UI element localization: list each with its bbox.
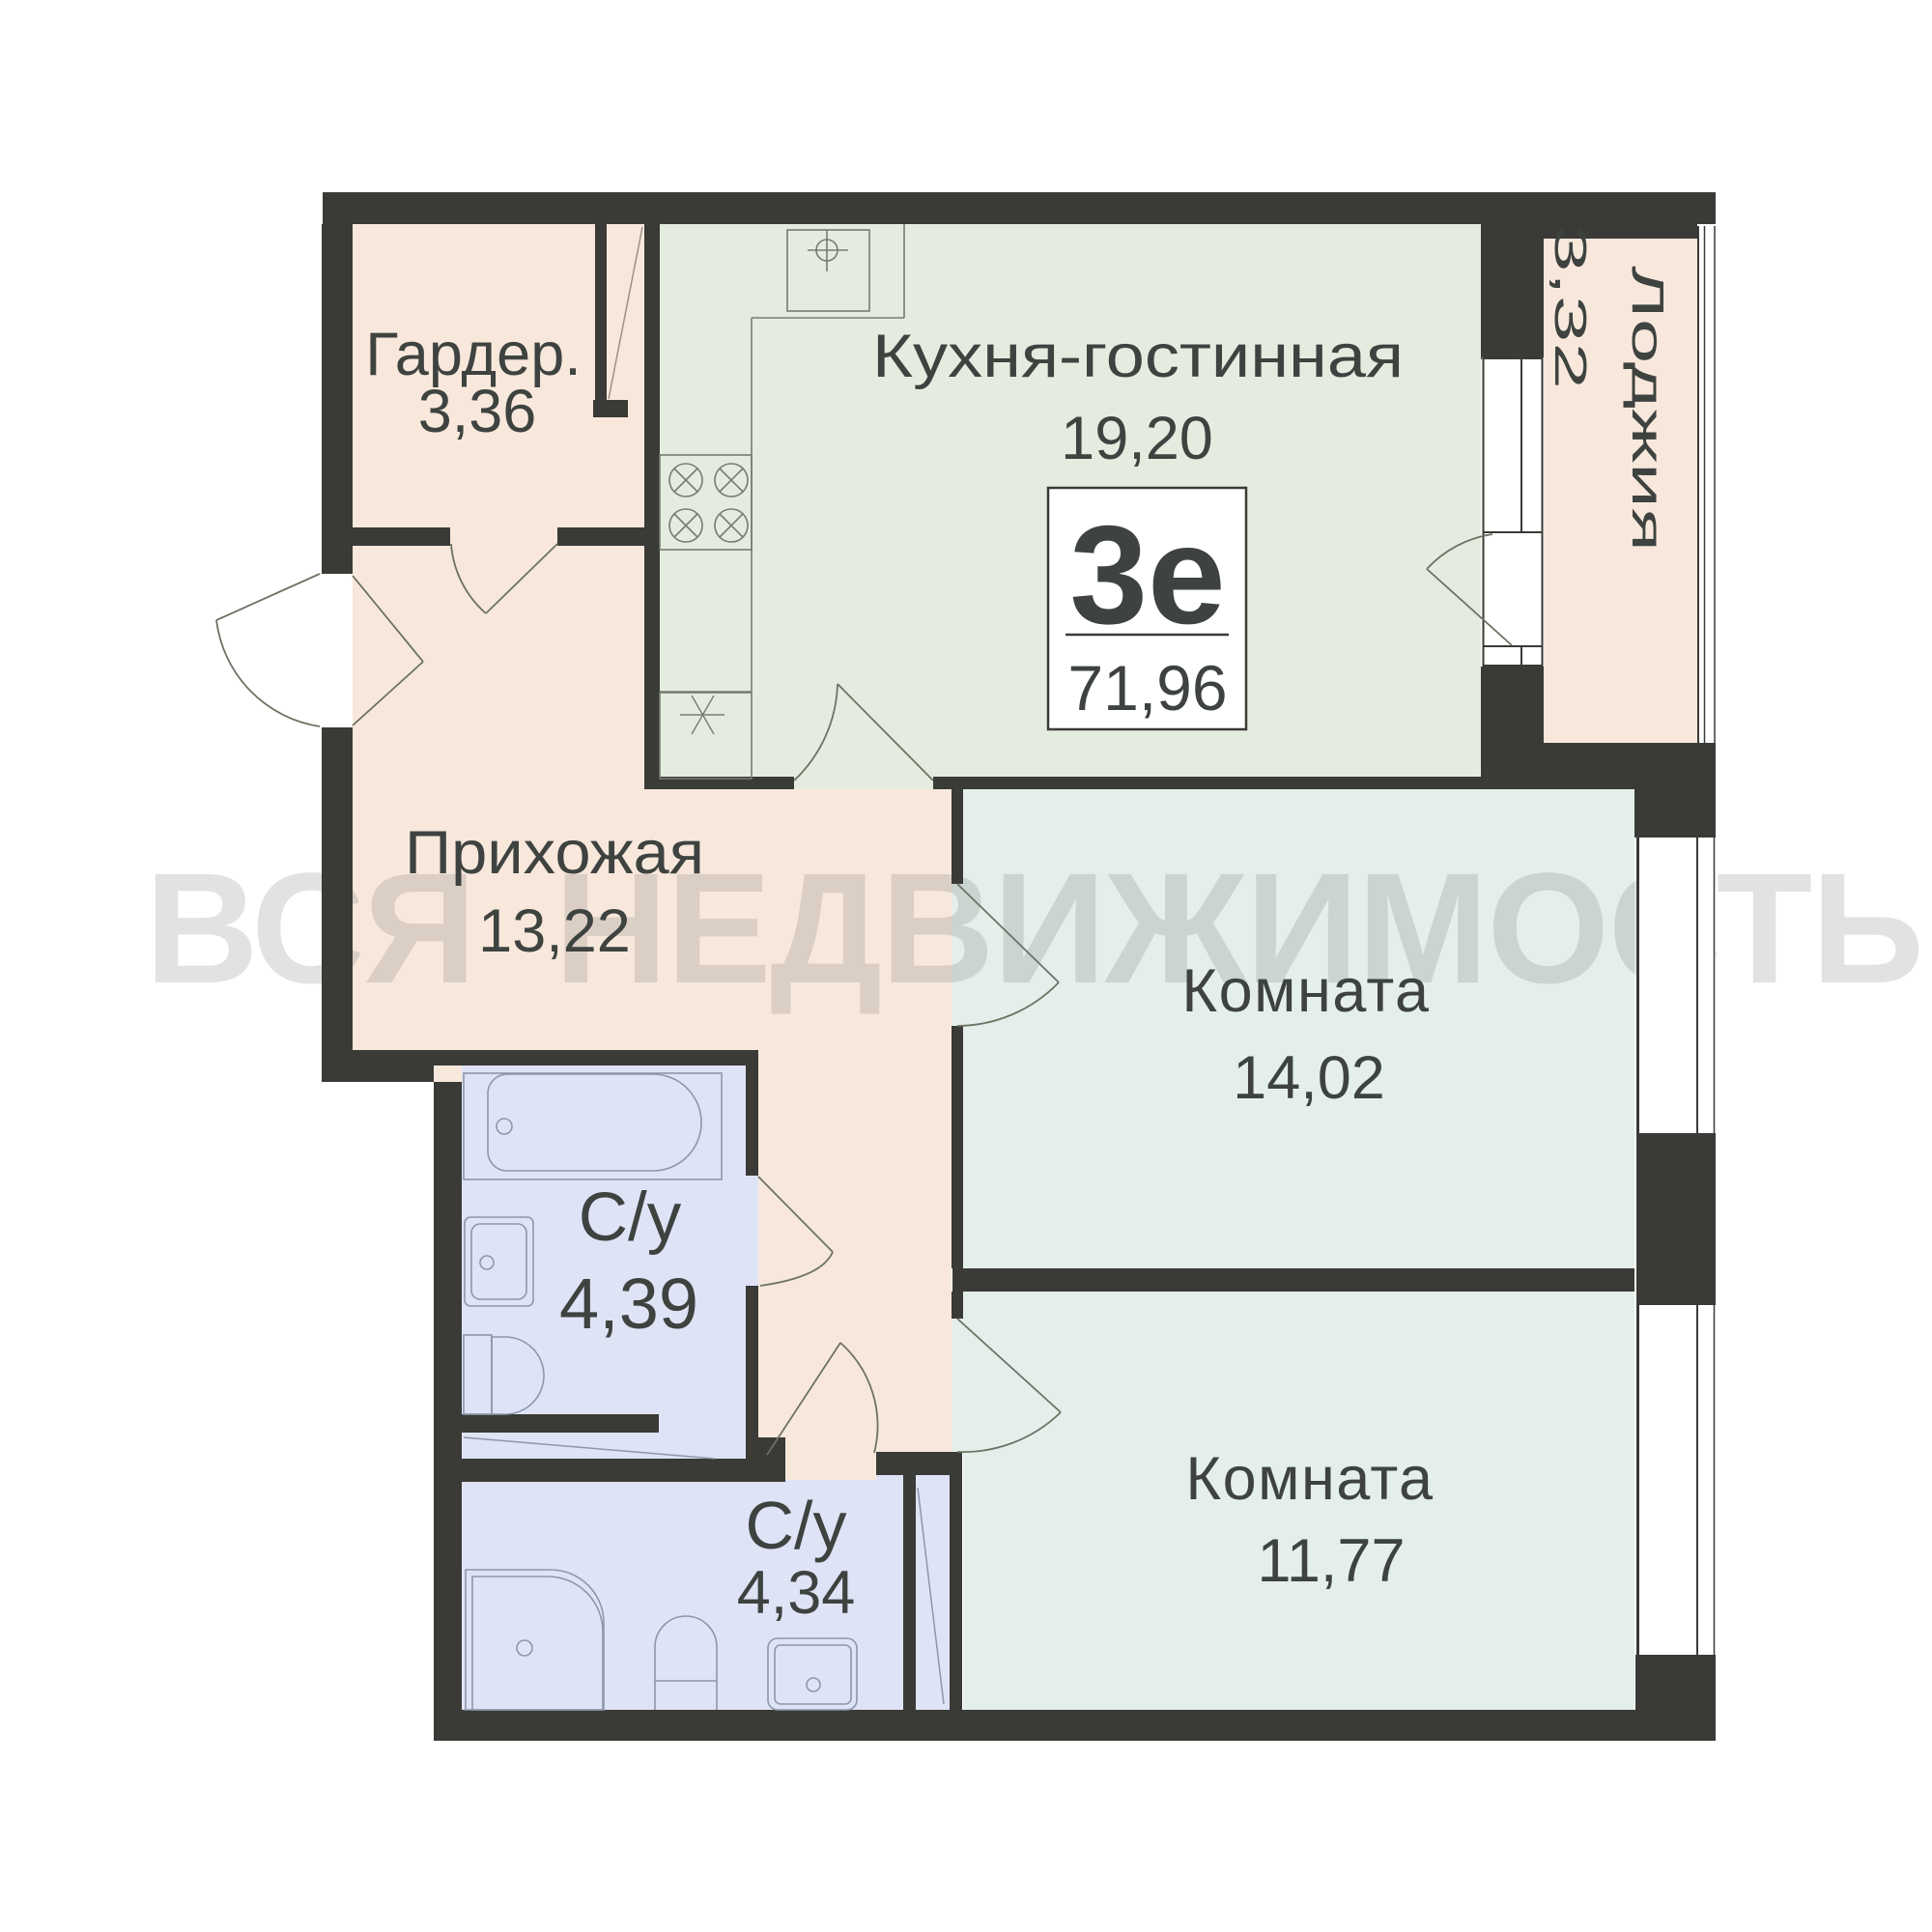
svg-text:11,77: 11,77 bbox=[1258, 1527, 1406, 1595]
svg-text:С/у: С/у bbox=[746, 1488, 847, 1563]
svg-text:13,22: 13,22 bbox=[478, 897, 631, 965]
svg-text:Комната: Комната bbox=[1181, 957, 1430, 1025]
svg-text:3е: 3е bbox=[1069, 497, 1225, 653]
svg-text:4,39: 4,39 bbox=[559, 1264, 698, 1344]
svg-text:Прихожая: Прихожая bbox=[405, 819, 704, 887]
svg-text:3,32: 3,32 bbox=[1546, 225, 1596, 389]
svg-text:14,02: 14,02 bbox=[1233, 1044, 1385, 1112]
svg-text:С/у: С/у bbox=[579, 1179, 682, 1256]
svg-text:Кухня-гостинная: Кухня-гостинная bbox=[872, 323, 1404, 390]
svg-text:19,20: 19,20 bbox=[1061, 405, 1213, 472]
svg-text:Комната: Комната bbox=[1185, 1445, 1434, 1513]
svg-text:4,34: 4,34 bbox=[737, 1559, 856, 1627]
svg-text:71,96: 71,96 bbox=[1067, 652, 1227, 724]
svg-text:3,36: 3,36 bbox=[418, 378, 537, 445]
svg-text:Лоджия: Лоджия bbox=[1623, 266, 1673, 552]
